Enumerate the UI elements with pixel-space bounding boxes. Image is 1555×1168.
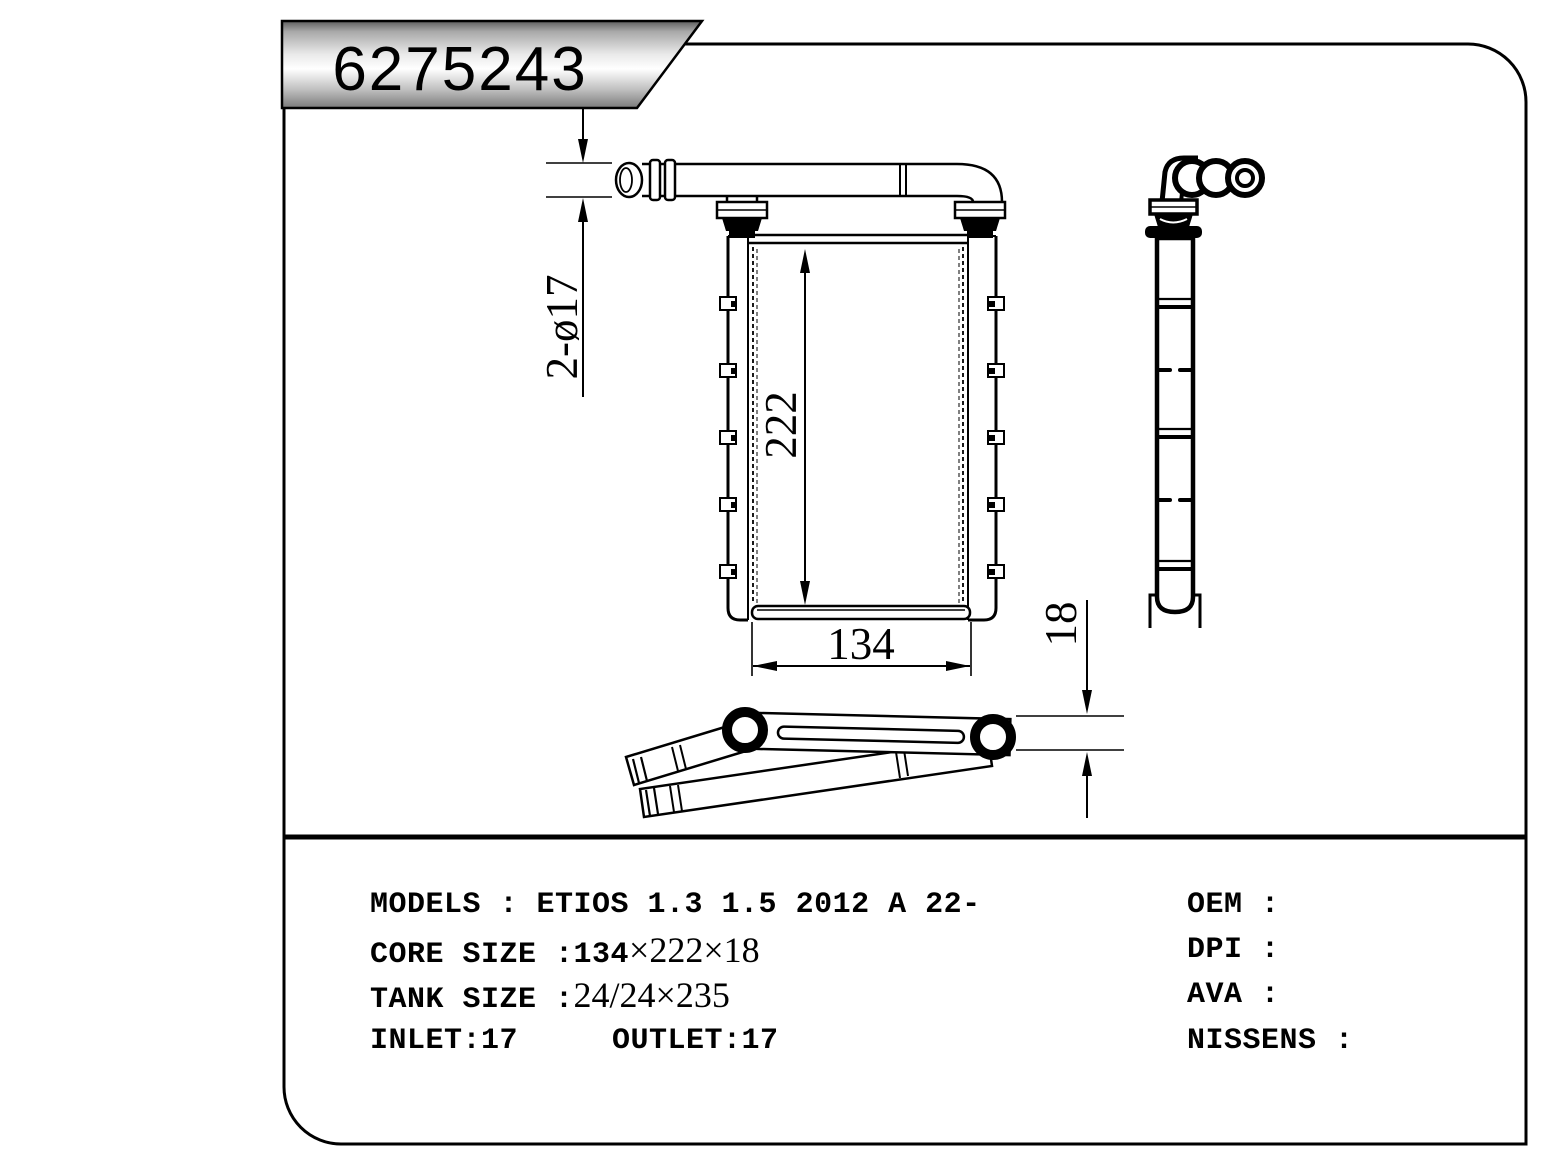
tank-channel-right	[959, 236, 996, 620]
notch	[988, 297, 1004, 310]
notch	[988, 498, 1004, 511]
arrowhead-down	[578, 139, 588, 163]
technical-drawing-canvas: 6275243	[0, 0, 1555, 1168]
pipe-fitting-left	[717, 196, 767, 238]
dim-height-label: 222	[756, 391, 806, 459]
arrowhead-down	[1082, 690, 1092, 714]
spec-outlet-text: OUTLET:17	[612, 1024, 779, 1058]
spec-inlet: INLET:17	[370, 1021, 518, 1061]
dimension-height: 222	[756, 249, 810, 605]
side-fitting	[1154, 214, 1193, 227]
arrowhead-up	[1082, 752, 1092, 776]
spec-oem: OEM :	[1187, 885, 1280, 925]
spec-tank-size: TANK SIZE :24/24×235	[370, 975, 730, 1020]
tank-channel-left	[728, 236, 757, 620]
spec-models-text: MODELS : ETIOS 1.3 1.5 2012 A 22-	[370, 888, 981, 922]
inlet-outlet-pipe	[616, 160, 1002, 202]
spec-nissens: NISSENS :	[1187, 1021, 1354, 1061]
pipe-ring	[650, 160, 660, 200]
dimension-depth: 18	[1016, 600, 1124, 818]
spec-dpi: DPI :	[1187, 930, 1280, 970]
spec-models: MODELS : ETIOS 1.3 1.5 2012 A 22-	[370, 885, 981, 925]
spec-core-size: CORE SIZE :134×222×18	[370, 930, 760, 975]
notch	[988, 431, 1004, 444]
arrowhead-right	[946, 661, 970, 671]
part-number-banner: 6275243	[282, 21, 702, 108]
dim-width-label: 134	[827, 619, 895, 669]
side-view	[1145, 158, 1262, 628]
dim-ports-label: 2-ø17	[537, 275, 587, 380]
notch	[720, 431, 737, 444]
front-view	[616, 160, 1005, 620]
pipe-fitting-right	[955, 202, 1005, 238]
dimension-width: 134	[752, 619, 971, 676]
drawing-page: 6275243	[0, 0, 1555, 1168]
notch	[988, 565, 1004, 578]
spec-inlet-text: INLET:17	[370, 1024, 518, 1058]
dim-depth-label: 18	[1036, 602, 1086, 647]
notch	[720, 565, 737, 578]
pipe-ring	[665, 160, 675, 200]
spec-ava: AVA :	[1187, 975, 1280, 1015]
spec-outlet: OUTLET:17	[612, 1021, 779, 1061]
arrowhead-left	[753, 661, 777, 671]
notch	[988, 364, 1004, 377]
spec-core-label: CORE SIZE :134	[370, 938, 629, 972]
bottom-fitting-left	[727, 712, 763, 748]
dimension-ports: 2-ø17	[537, 109, 612, 397]
bottom-view	[626, 712, 1011, 817]
arrowhead-down	[800, 581, 810, 605]
bottom-fitting-right	[975, 719, 1011, 755]
side-tank-column	[1157, 238, 1193, 612]
arrowhead-up	[578, 198, 588, 222]
spec-oem-text: OEM :	[1187, 888, 1280, 922]
notch	[720, 364, 737, 377]
notch	[720, 297, 737, 310]
spec-tank-value: 24/24×235	[574, 975, 730, 1015]
part-number: 6275243	[332, 35, 587, 104]
spec-ava-text: AVA :	[1187, 978, 1280, 1012]
spec-dpi-text: DPI :	[1187, 933, 1280, 967]
notch	[720, 498, 737, 511]
spec-tank-label: TANK SIZE :	[370, 983, 574, 1017]
spec-nissens-text: NISSENS :	[1187, 1024, 1354, 1058]
spec-core-value: ×222×18	[629, 930, 760, 970]
